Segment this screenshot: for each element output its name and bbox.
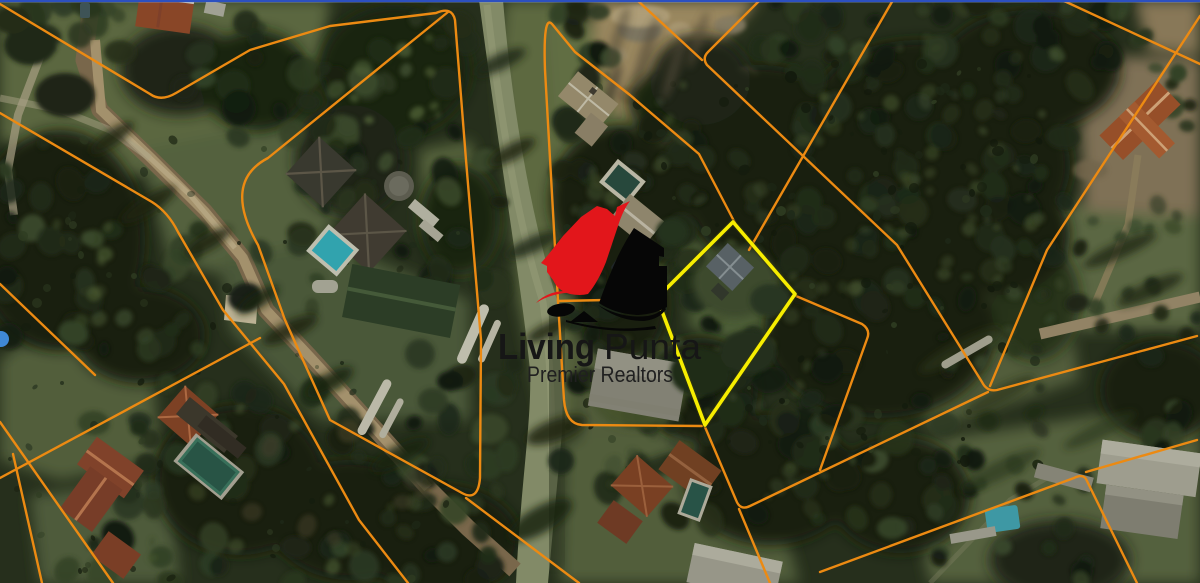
svg-text:Premier Realtors: Premier Realtors bbox=[527, 362, 673, 387]
svg-text:Living: Living bbox=[498, 326, 595, 367]
svg-text:Punta: Punta bbox=[604, 326, 702, 367]
